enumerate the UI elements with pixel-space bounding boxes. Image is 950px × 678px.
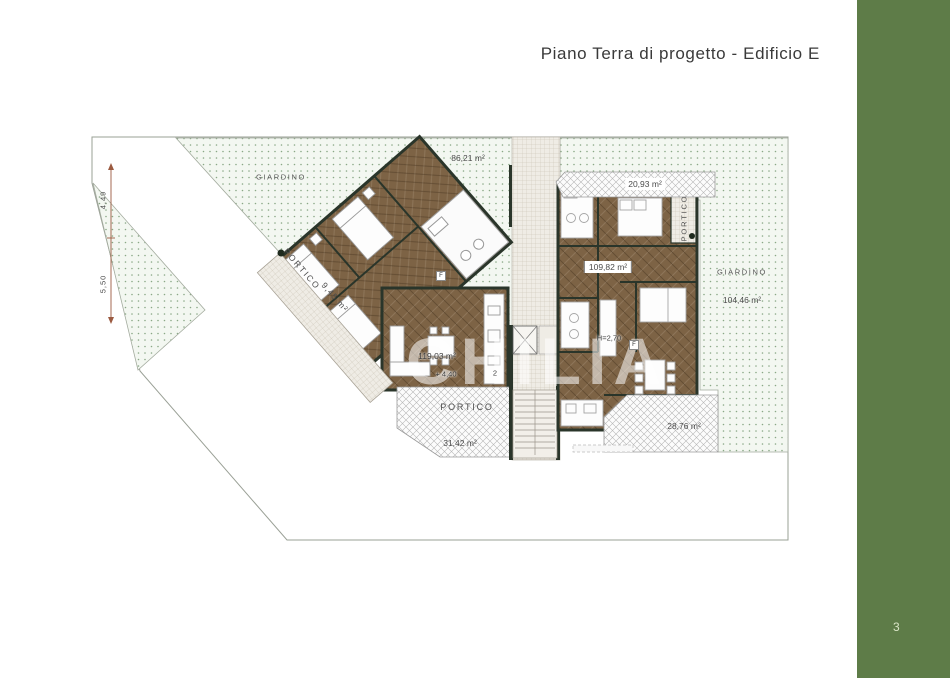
unit-left-area-label: 119,03 m² <box>418 351 456 361</box>
unit-left-level-label: + 4,40 <box>435 370 456 379</box>
appliance-label-left: F <box>436 271 446 281</box>
garden-right-area-label: 104,46 m² <box>723 295 761 305</box>
page-number: 3 <box>893 620 900 634</box>
unit-right <box>558 182 697 430</box>
unit-right-area-label: 109,82 m² <box>584 261 632 273</box>
portico-right-label: PORTICO <box>680 195 689 242</box>
column-dot-right <box>689 233 695 239</box>
floor-plan-drawing <box>0 0 950 678</box>
portico-bottom-right-area-label: 28,76 m² <box>667 421 701 431</box>
unit-right-height-label: H=2,70 <box>597 334 621 343</box>
dimension-upper-label: 4,49 <box>99 191 108 210</box>
accent-sidebar: 3 <box>857 0 950 678</box>
dimension-lower-label: 5,50 <box>99 275 108 294</box>
portico-bottom-label: PORTICO <box>440 402 493 412</box>
garden-top-area-label: 86,21 m² <box>451 153 485 163</box>
paving-strip <box>573 445 633 452</box>
garden-left-label: GIARDINO <box>256 173 306 182</box>
unit-left-number-label: 2 <box>493 369 497 378</box>
appliance-label-right: F <box>629 340 639 350</box>
garden-right-label: GIARDINO <box>717 268 767 277</box>
portico-top-right-area-label: 20,93 m² <box>625 178 665 190</box>
page-title: Piano Terra di progetto - Edificio E <box>541 44 820 64</box>
portico-bottom-area-label: 31,42 m² <box>443 438 477 448</box>
